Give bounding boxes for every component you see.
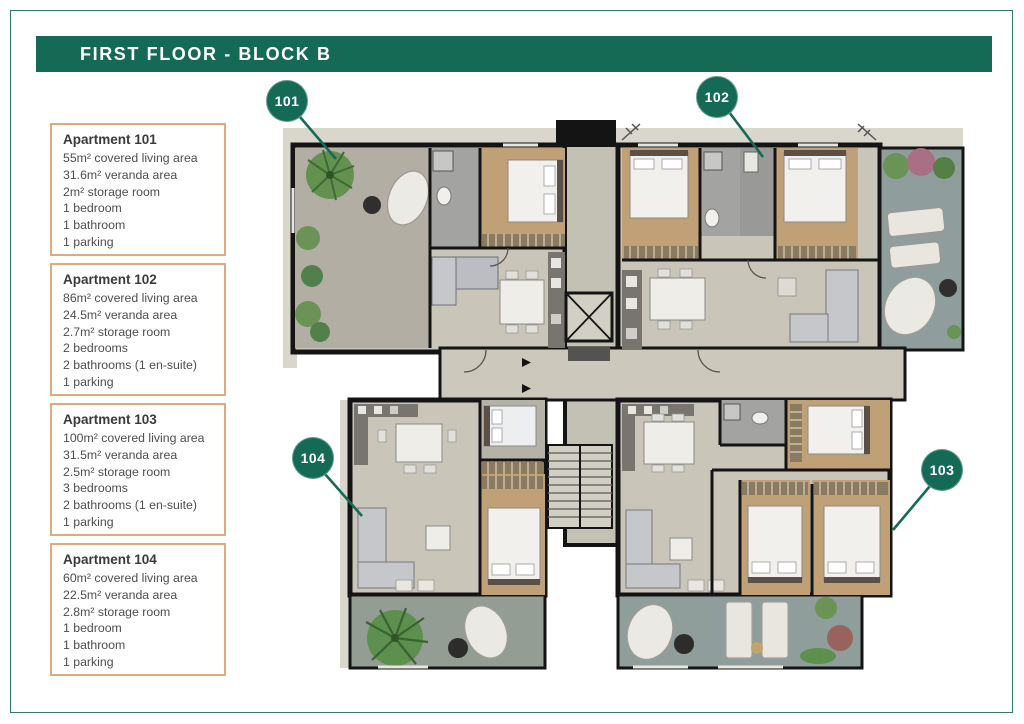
sun-lounger-icon: [889, 241, 941, 268]
round-table-icon: [674, 634, 694, 654]
apartment-103-bathrooms: 2 bathrooms (1 en-suite): [63, 497, 213, 514]
round-table-icon: [939, 279, 957, 297]
wardrobe-103b: [742, 482, 808, 495]
plant-icon: [947, 325, 961, 339]
small-table-icon: [751, 642, 763, 654]
apartment-103-storage: 2.5m² storage room: [63, 464, 213, 481]
wardrobe-104: [482, 476, 543, 489]
bed-102b: [784, 150, 846, 222]
unit-badge-104-label: 104: [301, 450, 326, 466]
floor-plan: [278, 118, 968, 688]
footstool-icon: [708, 580, 724, 591]
header-bar: FIRST FLOOR - BLOCK B: [36, 36, 992, 72]
dining-table-103: [644, 414, 694, 472]
elevator-mat: [568, 347, 610, 361]
apartment-101-card: Apartment 101 55m² covered living area 3…: [50, 123, 226, 256]
apartment-104-storage: 2.8m² storage room: [63, 604, 213, 621]
apartment-104-parking: 1 parking: [63, 654, 213, 671]
apartment-102-bedrooms: 2 bedrooms: [63, 340, 213, 357]
toilet-icon: [752, 412, 768, 424]
apartment-104-bedrooms: 1 bedroom: [63, 620, 213, 637]
ottoman-102: [778, 278, 796, 296]
unit-badge-102: 102: [696, 76, 738, 118]
apartment-101-bedrooms: 1 bedroom: [63, 200, 213, 217]
bed-102a: [630, 150, 688, 218]
apartment-102-veranda-area: 24.5m² veranda area: [63, 307, 213, 324]
kitchen-102: [622, 270, 642, 350]
apartment-102-card: Apartment 102 86m² covered living area 2…: [50, 263, 226, 396]
apartment-104-veranda-area: 22.5m² veranda area: [63, 587, 213, 604]
flower-plant-icon: [827, 625, 853, 651]
coffee-table-104: [426, 526, 450, 550]
dining-table-101: [500, 271, 544, 333]
bed-103b: [748, 506, 802, 583]
apartment-104-card: Apartment 104 60m² covered living area 2…: [50, 543, 226, 676]
stairs-icon: [548, 445, 612, 528]
unit-badge-104: 104: [292, 437, 334, 479]
kitchen-101: [548, 252, 565, 348]
wardrobe-101: [482, 234, 565, 247]
wardrobe-102a: [624, 246, 698, 259]
apartment-101-title: Apartment 101: [63, 132, 213, 147]
footstool-icon: [396, 580, 412, 591]
footstool-icon: [688, 580, 704, 591]
apartment-101-living-area: 55m² covered living area: [63, 150, 213, 167]
toilet-icon: [437, 187, 451, 205]
apartment-103-title: Apartment 103: [63, 412, 213, 427]
apartment-103-parking: 1 parking: [63, 514, 213, 531]
apartment-103-veranda-area: 31.5m² veranda area: [63, 447, 213, 464]
apartment-102-parking: 1 parking: [63, 374, 213, 391]
apartment-104-bathrooms: 1 bathroom: [63, 637, 213, 654]
toilet-icon: [705, 209, 719, 227]
wardrobe-104-hall: [482, 462, 544, 474]
sun-lounger-icon: [762, 602, 788, 658]
apartment-101-storage: 2m² storage room: [63, 184, 213, 201]
dining-table-102: [650, 269, 705, 329]
apartment-102-title: Apartment 102: [63, 272, 213, 287]
plant-icon: [883, 153, 909, 179]
shower-icon: [724, 404, 740, 420]
unit-badge-101-label: 101: [275, 93, 300, 109]
plant-icon: [815, 597, 837, 619]
plant-icon: [933, 157, 955, 179]
laundry-icon: [744, 152, 758, 172]
bed-103a: [808, 406, 870, 454]
shower-icon: [433, 151, 453, 171]
unit-badge-101: 101: [266, 80, 308, 122]
flower-plant-icon: [907, 148, 935, 176]
round-table-icon: [448, 638, 468, 658]
apartment-102-storage: 2.7m² storage room: [63, 324, 213, 341]
page-title: FIRST FLOOR - BLOCK B: [36, 44, 332, 65]
bed-101: [508, 160, 563, 222]
shower-icon: [704, 152, 722, 170]
bed-104-small: [484, 406, 536, 446]
elevator-icon: [566, 293, 612, 341]
apartment-101-parking: 1 parking: [63, 234, 213, 251]
apartment-103-bedrooms: 3 bedrooms: [63, 480, 213, 497]
unit-badge-103-label: 103: [930, 462, 955, 478]
footstool-icon: [418, 580, 434, 591]
coffee-table-103: [670, 538, 692, 560]
plant-icon: [800, 648, 836, 664]
apartment-102-living-area: 86m² covered living area: [63, 290, 213, 307]
apartment-104-living-area: 60m² covered living area: [63, 570, 213, 587]
wardrobe-103c: [814, 482, 888, 495]
core-top-wall: [556, 120, 616, 145]
apartment-101-bathrooms: 1 bathroom: [63, 217, 213, 234]
wardrobe-102b: [778, 246, 856, 259]
sun-lounger-icon: [726, 602, 752, 658]
apartment-102-bathrooms: 2 bathrooms (1 en-suite): [63, 357, 213, 374]
unit-badge-103: 103: [921, 449, 963, 491]
apartment-101-veranda-area: 31.6m² veranda area: [63, 167, 213, 184]
sun-lounger-icon: [887, 207, 945, 237]
floor-plan-drawing: [278, 118, 968, 688]
apartment-103-living-area: 100m² covered living area: [63, 430, 213, 447]
wardrobe-103a: [790, 404, 802, 462]
bed-103c: [824, 506, 880, 583]
bed-104: [488, 508, 540, 585]
apartment-104-title: Apartment 104: [63, 552, 213, 567]
side-table-101: [363, 196, 381, 214]
unit-badge-102-label: 102: [705, 89, 730, 105]
apartment-103-card: Apartment 103 100m² covered living area …: [50, 403, 226, 536]
